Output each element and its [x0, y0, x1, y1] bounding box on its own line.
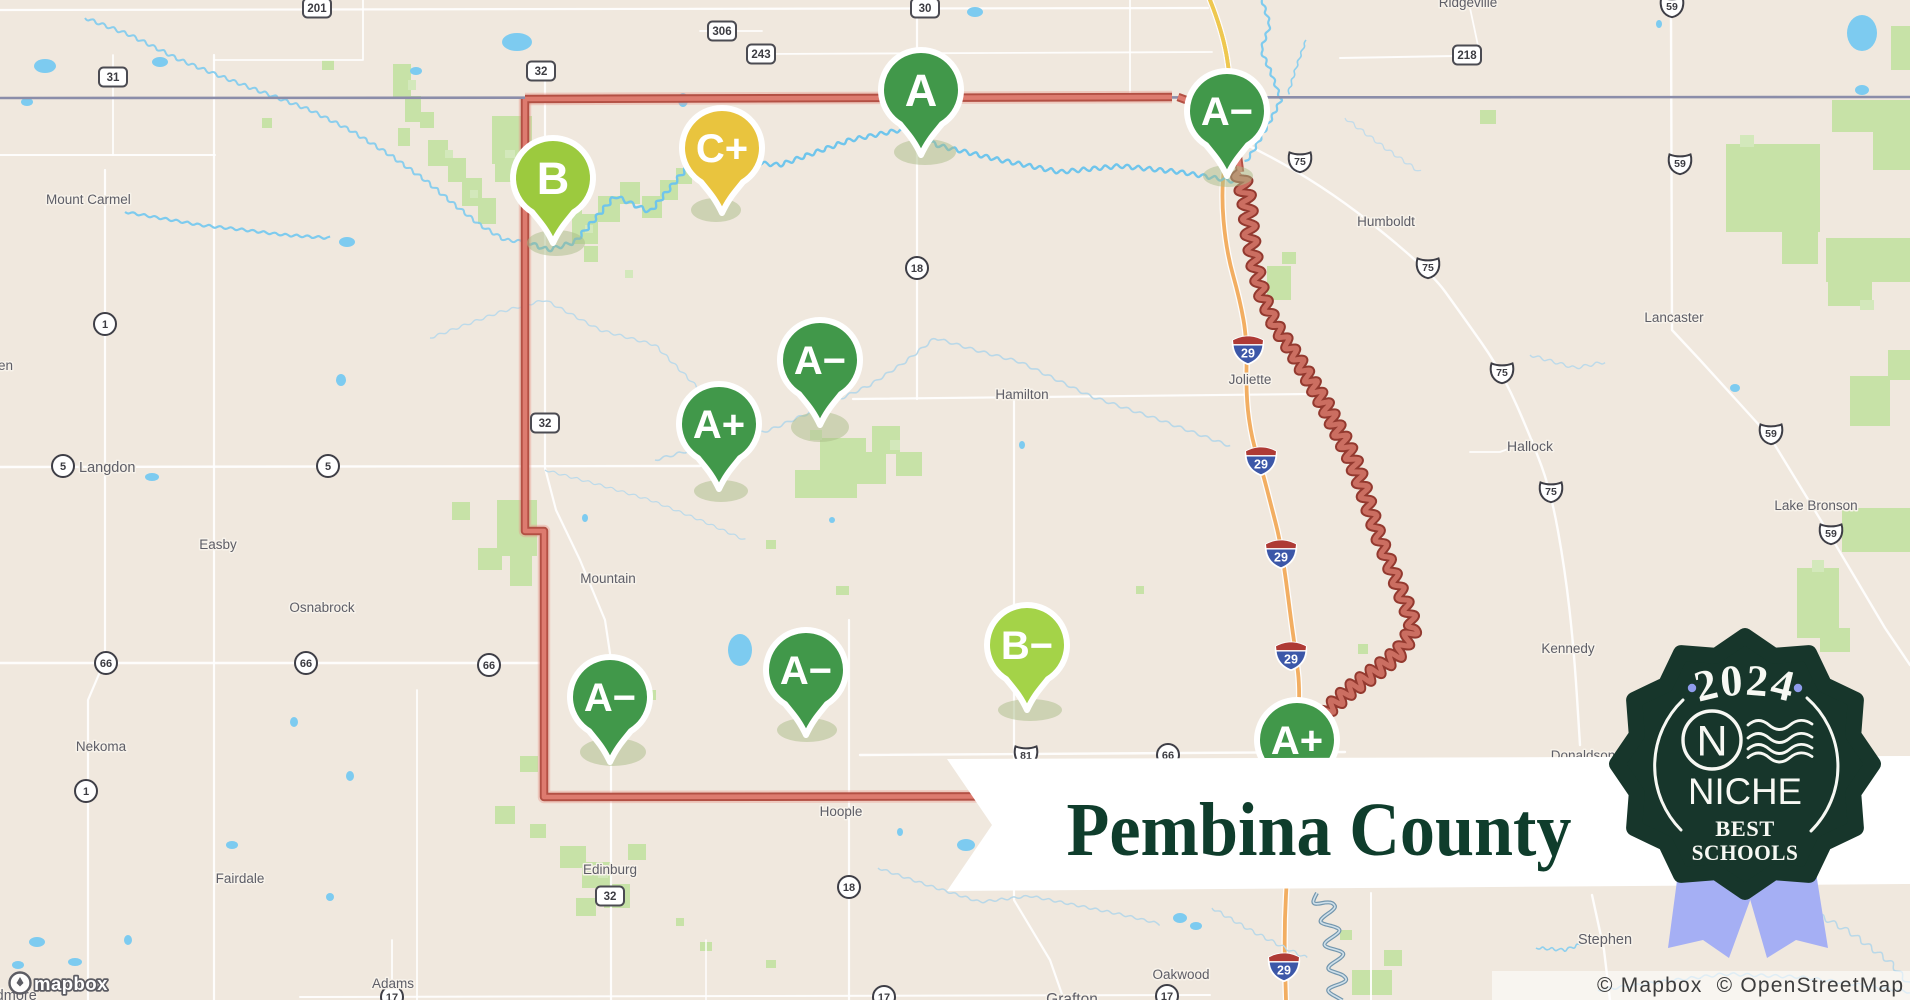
svg-text:17: 17 [386, 992, 398, 1000]
svg-text:59: 59 [1825, 528, 1837, 540]
svg-text:Edinburg: Edinburg [583, 862, 637, 877]
svg-text:Joliette: Joliette [1229, 372, 1272, 387]
svg-text:A−: A− [584, 676, 636, 720]
svg-text:31: 31 [107, 72, 120, 84]
svg-text:B−: B− [1001, 624, 1053, 668]
svg-text:29: 29 [1284, 652, 1298, 666]
svg-text:en: en [0, 358, 13, 373]
svg-text:C+: C+ [696, 127, 748, 171]
svg-text:17: 17 [878, 992, 890, 1000]
svg-text:Stephen: Stephen [1578, 932, 1632, 948]
svg-text:59: 59 [1666, 1, 1678, 13]
svg-text:BEST: BEST [1715, 816, 1775, 841]
svg-text:1: 1 [102, 319, 108, 331]
svg-text:243: 243 [751, 49, 770, 61]
svg-text:B: B [537, 153, 570, 204]
svg-text:Adams: Adams [372, 976, 414, 991]
svg-text:201: 201 [307, 3, 327, 15]
svg-text:NICHE: NICHE [1688, 771, 1802, 812]
svg-text:Osnabrock: Osnabrock [289, 600, 355, 615]
svg-text:66: 66 [100, 658, 112, 670]
svg-text:mapbox: mapbox [34, 973, 108, 994]
svg-text:75: 75 [1294, 156, 1306, 168]
svg-text:5: 5 [325, 461, 331, 473]
svg-text:Ridgeville: Ridgeville [1439, 0, 1498, 10]
svg-text:29: 29 [1277, 963, 1291, 977]
svg-text:29: 29 [1241, 346, 1255, 360]
svg-text:Easby: Easby [199, 537, 237, 552]
svg-text:Kennedy: Kennedy [1541, 641, 1595, 656]
svg-text:Mount Carmel: Mount Carmel [46, 192, 131, 207]
svg-text:18: 18 [911, 263, 923, 275]
svg-text:Oakwood: Oakwood [1152, 967, 1209, 982]
svg-text:SCHOOLS: SCHOOLS [1692, 839, 1799, 865]
svg-text:Hallock: Hallock [1507, 438, 1554, 454]
svg-text:A+: A+ [693, 403, 745, 447]
svg-text:75: 75 [1422, 262, 1434, 274]
svg-text:75: 75 [1545, 486, 1557, 498]
svg-text:29: 29 [1274, 550, 1288, 564]
svg-text:29: 29 [1254, 457, 1268, 471]
svg-text:A: A [905, 65, 938, 116]
svg-text:Hoople: Hoople [820, 804, 863, 819]
svg-text:32: 32 [535, 66, 548, 78]
svg-text:Grafton: Grafton [1046, 991, 1098, 1000]
svg-text:Langdon: Langdon [79, 460, 135, 476]
svg-text:59: 59 [1765, 428, 1777, 440]
svg-text:Hamilton: Hamilton [995, 387, 1048, 402]
svg-text:Humboldt: Humboldt [1357, 214, 1415, 229]
svg-text:Lake Bronson: Lake Bronson [1774, 498, 1857, 513]
svg-text:75: 75 [1496, 367, 1508, 379]
svg-text:© Mapbox © OpenStreetMap: © Mapbox © OpenStreetMap [1597, 974, 1904, 997]
svg-text:66: 66 [300, 658, 312, 670]
svg-text:66: 66 [483, 660, 495, 672]
svg-text:Pembina County: Pembina County [1067, 788, 1572, 872]
svg-text:A−: A− [780, 649, 832, 693]
svg-text:1: 1 [83, 786, 89, 798]
svg-text:A−: A− [794, 339, 846, 383]
svg-text:218: 218 [1457, 50, 1477, 62]
svg-text:N: N [1696, 718, 1727, 766]
svg-text:30: 30 [919, 3, 932, 15]
svg-text:5: 5 [60, 461, 66, 473]
svg-text:Nekoma: Nekoma [76, 739, 127, 754]
svg-text:32: 32 [604, 891, 617, 903]
svg-text:306: 306 [712, 26, 731, 38]
svg-text:A+: A+ [1271, 719, 1323, 763]
svg-text:A−: A− [1201, 90, 1253, 134]
svg-text:32: 32 [539, 418, 552, 430]
svg-text:Lancaster: Lancaster [1644, 310, 1704, 325]
svg-text:Mountain: Mountain [580, 571, 636, 586]
svg-text:17: 17 [1161, 991, 1173, 1000]
svg-text:18: 18 [843, 882, 855, 894]
svg-text:Fairdale: Fairdale [216, 871, 265, 886]
svg-text:59: 59 [1674, 158, 1686, 170]
